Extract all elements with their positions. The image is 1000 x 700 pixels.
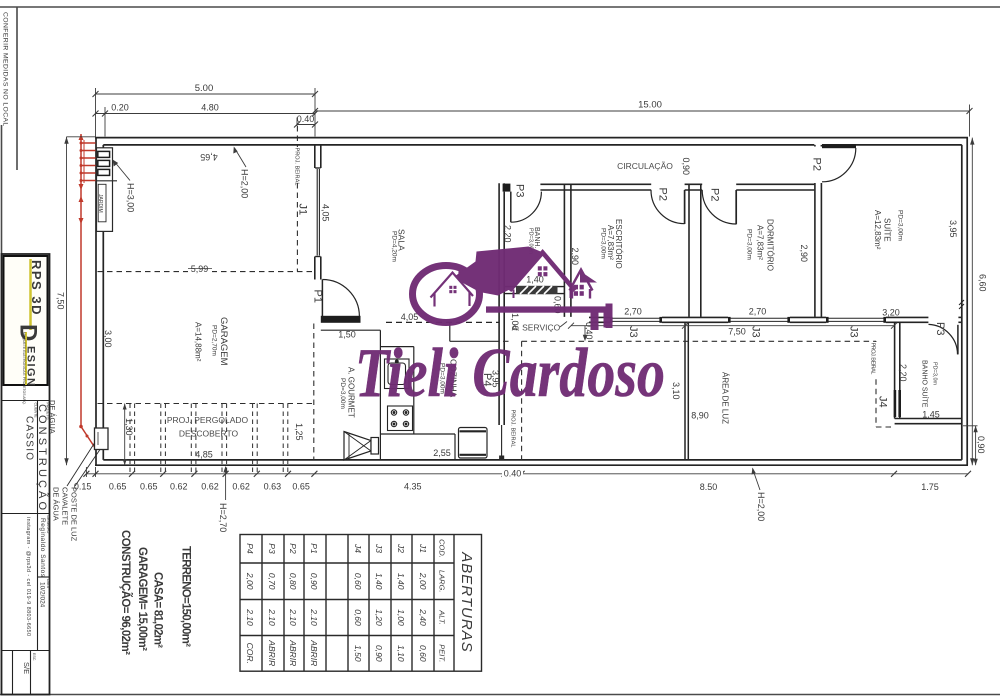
svg-text:2,40: 2,40 — [418, 608, 428, 626]
svg-text:COR.: COR. — [245, 643, 255, 664]
svg-text:PROJ. PERGOLADO: PROJ. PERGOLADO — [167, 415, 249, 425]
svg-text:3,95: 3,95 — [948, 220, 958, 238]
svg-text:8,90: 8,90 — [691, 411, 709, 421]
svg-text:Tieli Cardoso: Tieli Cardoso — [355, 335, 665, 412]
svg-text:0,90: 0,90 — [976, 436, 986, 454]
svg-text:0.62: 0.62 — [232, 482, 250, 492]
svg-text:P2: P2 — [288, 543, 298, 554]
svg-text:J4: J4 — [353, 543, 363, 553]
svg-text:PROJ. BEIRAL: PROJ. BEIRAL — [870, 343, 876, 375]
svg-text:4,05: 4,05 — [321, 204, 331, 222]
svg-text:PD=4,20m: PD=4,20m — [391, 231, 398, 262]
svg-text:RPS 3D: RPS 3D — [29, 260, 44, 316]
svg-text:J1: J1 — [297, 204, 309, 216]
svg-text:3,20: 3,20 — [882, 308, 900, 318]
svg-text:0,60: 0,60 — [418, 645, 428, 662]
svg-text:P3: P3 — [514, 184, 526, 197]
svg-text:PD=3,00m: PD=3,00m — [339, 378, 346, 409]
svg-text:2,70: 2,70 — [624, 307, 642, 317]
svg-text:0,60: 0,60 — [353, 609, 363, 626]
svg-text:1.75: 1.75 — [921, 482, 939, 492]
svg-text:CONFERIR MEDIDAS NO LOCAL: CONFERIR MEDIDAS NO LOCAL — [2, 12, 9, 127]
svg-text:0,90: 0,90 — [681, 158, 691, 176]
svg-text:H=2,00: H=2,00 — [756, 492, 766, 521]
svg-text:0.65: 0.65 — [292, 482, 310, 492]
svg-text:7,50: 7,50 — [56, 292, 66, 310]
svg-text:J3: J3 — [848, 326, 860, 338]
svg-text:GARAGEM: GARAGEM — [218, 317, 229, 366]
svg-text:P2: P2 — [657, 188, 669, 201]
svg-text:0.40: 0.40 — [504, 469, 522, 479]
svg-text:ABRIR: ABRIR — [288, 639, 298, 666]
svg-text:S/E: S/E — [22, 662, 31, 674]
svg-text:0,70: 0,70 — [267, 573, 277, 590]
svg-text:J2: J2 — [396, 543, 406, 553]
svg-text:0.62: 0.62 — [170, 482, 188, 492]
svg-text:0.65: 0.65 — [140, 482, 158, 492]
svg-text:ESCRITÓRIO: ESCRITÓRIO — [614, 219, 623, 269]
svg-text:JARDIM: JARDIM — [97, 194, 103, 213]
svg-text:ÁREA DE LUZ: ÁREA DE LUZ — [721, 372, 730, 424]
svg-text:H=3,00: H=3,00 — [126, 183, 136, 212]
svg-text:GARAGEM= 15,00m²: GARAGEM= 15,00m² — [136, 547, 148, 651]
svg-text:4.35: 4.35 — [404, 482, 422, 492]
svg-text:5.00: 5.00 — [195, 83, 214, 94]
svg-text:DATA: DATA — [46, 579, 50, 589]
svg-text:ALT.: ALT. — [438, 609, 447, 625]
svg-text:2,90: 2,90 — [570, 248, 580, 266]
svg-text:15.00: 15.00 — [638, 100, 662, 111]
svg-text:MAQUETE ELETRONICA E PROJETOS: MAQUETE ELETRONICA E PROJETOS ARQ. — [22, 332, 26, 405]
svg-text:H=2,70: H=2,70 — [218, 503, 228, 532]
svg-text:4,05: 4,05 — [401, 312, 419, 322]
svg-text:0.63: 0.63 — [264, 482, 282, 492]
svg-text:0.65: 0.65 — [109, 482, 127, 492]
svg-text:J3: J3 — [750, 326, 762, 338]
svg-text:3,00: 3,00 — [103, 330, 113, 348]
svg-text:CAVALETE: CAVALETE — [61, 487, 70, 525]
svg-text:7,50: 7,50 — [728, 327, 746, 337]
svg-text:2,55: 2,55 — [433, 448, 451, 458]
svg-text:0.62: 0.62 — [201, 482, 219, 492]
svg-text:A=14,88m²: A=14,88m² — [194, 322, 203, 362]
svg-text:2,00: 2,00 — [245, 572, 255, 590]
svg-text:P3: P3 — [267, 543, 277, 554]
svg-text:ABRIR: ABRIR — [267, 639, 277, 666]
svg-text:TERRENO=150,00m²: TERRENO=150,00m² — [180, 546, 192, 647]
svg-text:2,90: 2,90 — [799, 245, 809, 263]
svg-text:0,60: 0,60 — [353, 573, 363, 590]
svg-text:P1: P1 — [309, 543, 319, 554]
svg-text:J3: J3 — [374, 543, 384, 553]
svg-text:2.10: 2.10 — [245, 608, 255, 626]
svg-text:J4: J4 — [877, 396, 889, 408]
svg-text:D: D — [15, 324, 42, 341]
svg-text:PROJ. BEIRAL: PROJ. BEIRAL — [510, 410, 516, 448]
svg-text:2.10: 2.10 — [288, 608, 298, 626]
svg-text:ESC.: ESC. — [32, 653, 36, 661]
svg-text:1,50: 1,50 — [353, 645, 363, 662]
svg-text:2,20: 2,20 — [898, 364, 908, 382]
svg-text:PD=2,70m: PD=2,70m — [211, 325, 218, 356]
svg-text:POSTE DE LUZ: POSTE DE LUZ — [70, 487, 79, 542]
svg-text:2,70: 2,70 — [749, 307, 767, 317]
svg-text:1,40: 1,40 — [374, 573, 384, 590]
svg-text:1,45: 1,45 — [922, 410, 940, 420]
svg-text:8.50: 8.50 — [700, 482, 718, 492]
svg-text:instagram - @rps3d - cel 01: instagram - @rps3d - cel 019-9 8803-6650 — [25, 517, 31, 636]
svg-text:PD=3,00m: PD=3,00m — [600, 228, 607, 259]
svg-text:BANH.: BANH. — [533, 227, 540, 248]
svg-text:PD=3,00m: PD=3,00m — [897, 210, 904, 241]
svg-text:10/2/024: 10/2/024 — [39, 582, 46, 608]
svg-text:P2: P2 — [811, 158, 823, 171]
svg-text:0,80: 0,80 — [288, 573, 298, 590]
svg-text:PEIT.: PEIT. — [438, 644, 447, 662]
svg-text:DORMITÓRIO: DORMITÓRIO — [766, 219, 775, 271]
svg-text:4.80: 4.80 — [201, 103, 219, 113]
svg-text:P3: P3 — [934, 322, 946, 335]
svg-text:P2: P2 — [709, 188, 721, 201]
svg-text:2,20: 2,20 — [503, 225, 513, 243]
svg-text:0.20: 0.20 — [111, 103, 129, 113]
svg-text:LARG.: LARG. — [438, 570, 447, 593]
svg-text:P1: P1 — [312, 290, 324, 303]
svg-text:1,25: 1,25 — [294, 423, 304, 441]
svg-text:SALA: SALA — [397, 229, 407, 251]
svg-text:1,50: 1,50 — [338, 329, 356, 339]
svg-text:2.10: 2.10 — [267, 608, 277, 626]
svg-text:COD.: COD. — [438, 539, 447, 558]
svg-text:2,00: 2,00 — [418, 572, 428, 590]
svg-text:PD=3,0m: PD=3,0m — [932, 362, 938, 385]
svg-text:J1: J1 — [418, 543, 428, 553]
svg-text:ABERTURAS: ABERTURAS — [458, 551, 475, 652]
svg-text:4,85: 4,85 — [195, 450, 213, 460]
svg-text:BANHO SUÍTE: BANHO SUÍTE — [921, 360, 930, 408]
svg-text:1,20: 1,20 — [374, 609, 384, 626]
svg-text:0,90: 0,90 — [374, 645, 384, 662]
svg-text:PD=3,00m: PD=3,00m — [746, 229, 753, 260]
svg-text:PROJ. BEIRAL: PROJ. BEIRAL — [294, 148, 300, 186]
svg-text:1,40: 1,40 — [396, 573, 406, 590]
svg-text:DE ÁGUA: DE ÁGUA — [48, 400, 57, 434]
svg-text:DE ÁGUA: DE ÁGUA — [52, 487, 61, 521]
svg-text:1,30: 1,30 — [124, 418, 134, 436]
svg-text:CONSTRUÇÃO= 96,02m²: CONSTRUÇÃO= 96,02m² — [119, 530, 132, 655]
svg-text:CONSTRUÇÃO: CONSTRUÇÃO — [36, 404, 49, 510]
svg-text:CASA= 81,02m²: CASA= 81,02m² — [152, 572, 164, 648]
svg-text:2.10: 2.10 — [309, 608, 319, 626]
svg-text:1,00: 1,00 — [510, 313, 520, 331]
svg-text:H=2,00: H=2,00 — [240, 169, 250, 198]
svg-text:DESCOBERTO: DESCOBERTO — [179, 429, 239, 439]
svg-text:A=7,83m²: A=7,83m² — [606, 225, 615, 260]
svg-text:1,10: 1,10 — [396, 645, 406, 662]
svg-text:3,10: 3,10 — [671, 382, 681, 400]
svg-text:CIRCULAÇÃO: CIRCULAÇÃO — [617, 161, 673, 171]
svg-text:A=12,83m²: A=12,83m² — [873, 210, 882, 250]
svg-text:0.40: 0.40 — [297, 114, 315, 124]
svg-text:1,00: 1,00 — [396, 609, 406, 626]
svg-text:SUÍTE: SUÍTE — [883, 218, 892, 242]
svg-text:4,65: 4,65 — [200, 152, 218, 162]
svg-text:6,60: 6,60 — [978, 274, 988, 292]
svg-text:Reginaldo Santos: Reginaldo Santos — [39, 518, 46, 578]
svg-text:CASSIO: CASSIO — [24, 416, 35, 460]
svg-text:ABRIR: ABRIR — [309, 639, 319, 666]
svg-text:P4: P4 — [245, 543, 255, 554]
svg-text:A=7,83m²: A=7,83m² — [756, 225, 765, 260]
svg-text:0,90: 0,90 — [309, 573, 319, 590]
